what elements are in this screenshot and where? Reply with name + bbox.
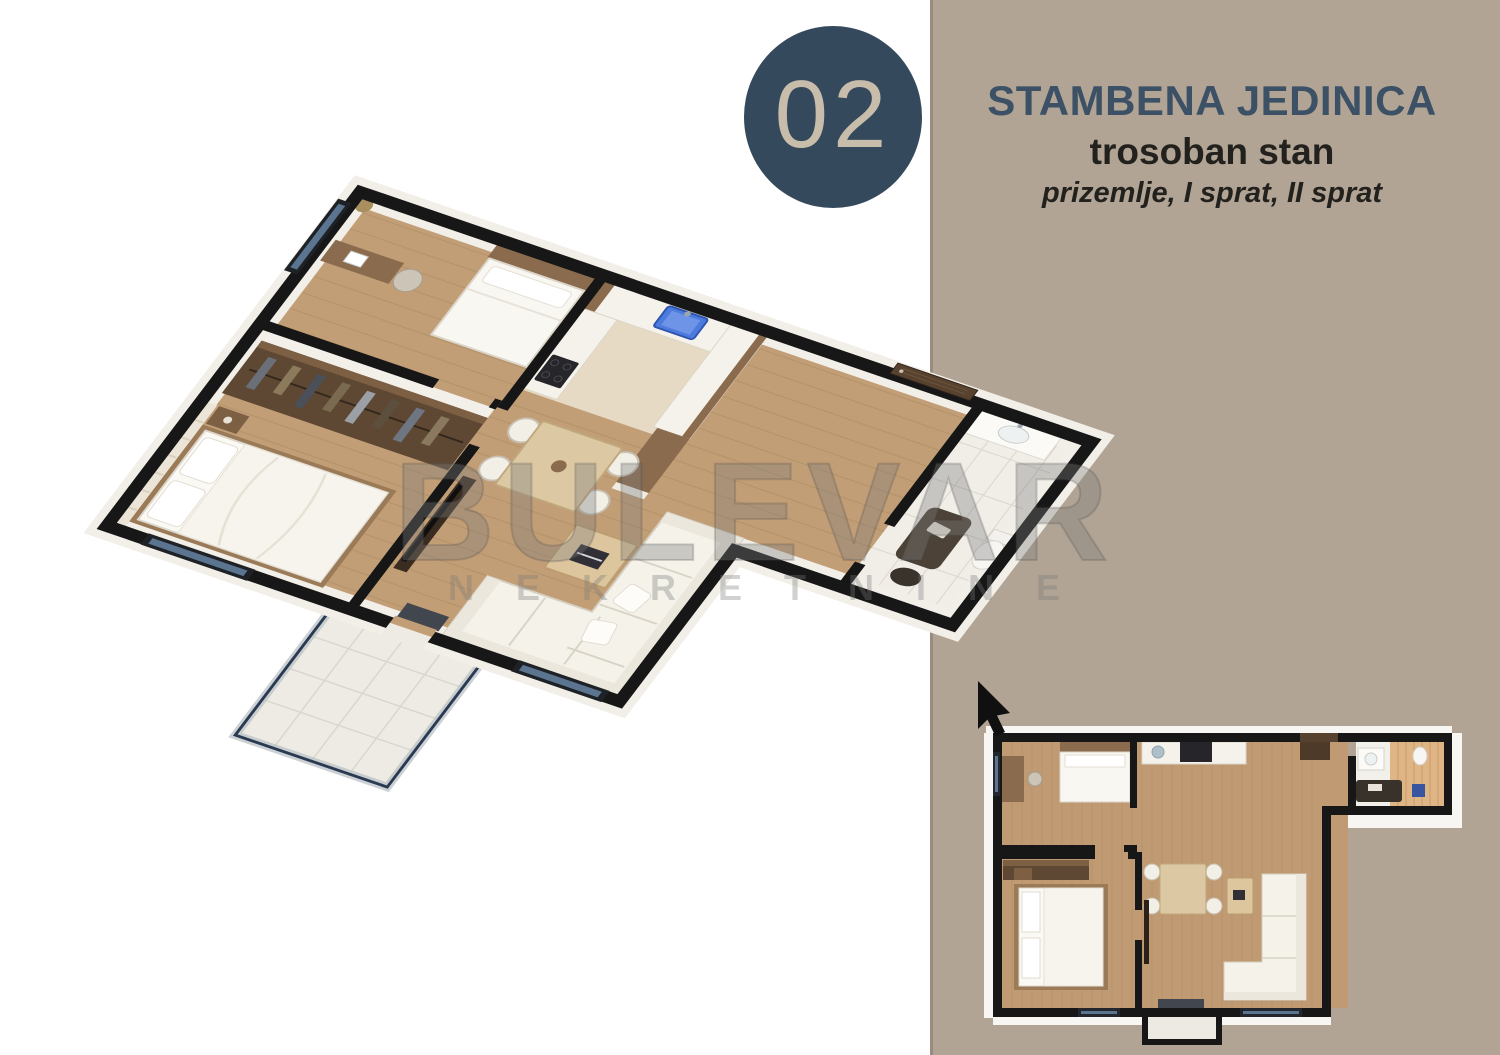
watermark-tagline: N E K R E T N I N E [448, 567, 1076, 608]
floor-plan-scene: BULEVAR N E K R E T N I N E [0, 0, 1500, 1055]
page: 02 STAMBENA JEDINICA trosoban stan prize… [0, 0, 1500, 1055]
mini-bathroom [1356, 742, 1444, 806]
mini-floorplan-2d [984, 726, 1462, 1042]
